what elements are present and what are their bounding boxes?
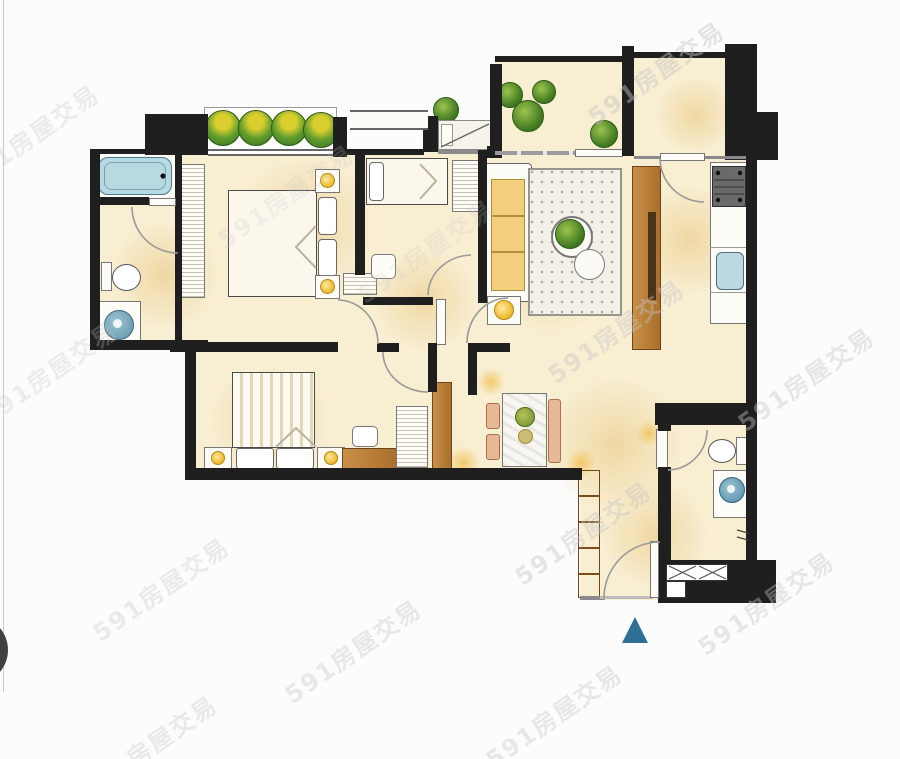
door-arc-bathroom2 <box>668 430 707 470</box>
shoe-cabinet-x <box>669 566 726 579</box>
door-arc-bedroom3 <box>428 255 471 295</box>
tub-faucet <box>160 173 165 178</box>
stove-knob <box>738 171 742 175</box>
floor-plan-image: 591房屋交易 591房屋交易 591房屋交易 591房屋交易 591房屋交易 … <box>0 0 900 759</box>
bed-fold-mark <box>276 428 316 447</box>
bed-fold-mark <box>420 164 436 199</box>
door-arc-bedroom2 <box>383 352 428 392</box>
annotation-overlay <box>0 0 900 759</box>
door-arc-master <box>338 300 378 344</box>
door-arc-hall <box>467 298 508 343</box>
stove-knob <box>716 198 720 202</box>
left-edge-line <box>3 0 4 692</box>
stove-knob <box>716 171 720 175</box>
ac-diagonal <box>441 124 489 147</box>
bath2-faucet-marks <box>737 530 748 540</box>
bed-fold-mark <box>296 226 316 268</box>
door-arc-entrance <box>604 542 660 598</box>
door-arc-porch <box>660 158 704 202</box>
door-arc-bathroom <box>132 207 178 253</box>
stove-grid <box>714 180 744 194</box>
stove-knob <box>738 198 742 202</box>
entrance-arrow <box>622 617 648 643</box>
